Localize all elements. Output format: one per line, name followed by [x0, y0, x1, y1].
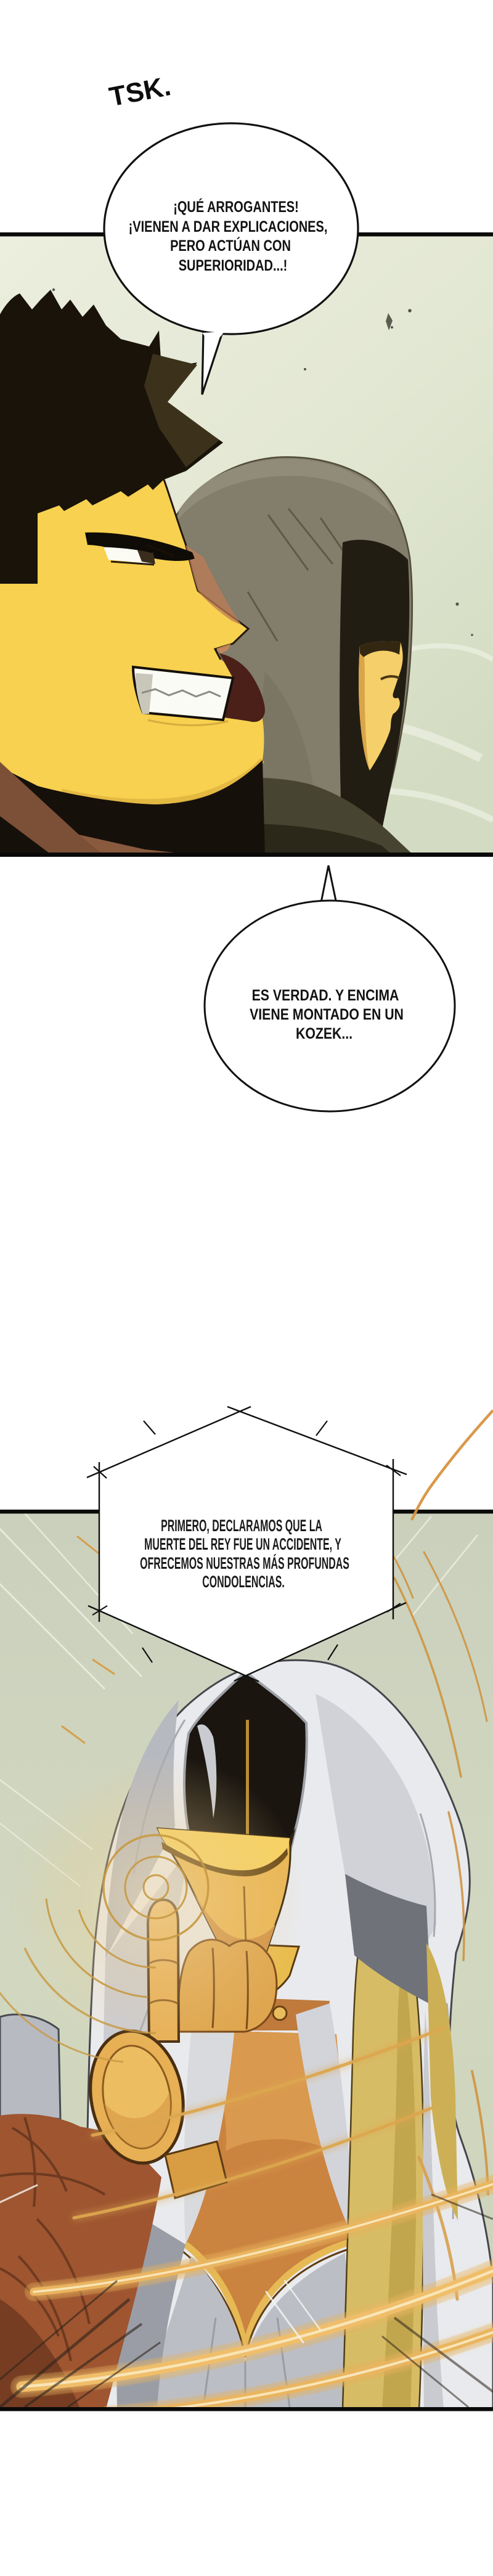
svg-text:PERO ACTÚAN CON: PERO ACTÚAN CON — [170, 237, 291, 255]
svg-text:OFRECEMOS NUESTRAS MÁS PROFUND: OFRECEMOS NUESTRAS MÁS PROFUNDAS — [140, 1554, 349, 1572]
svg-text:MUERTE DEL REY FUE UN ACCIDENT: MUERTE DEL REY FUE UN ACCIDENTE, Y — [144, 1535, 341, 1553]
svg-text:¡QUÉ ARROGANTES!: ¡QUÉ ARROGANTES! — [173, 198, 299, 216]
svg-text:VIENE MONTADO EN UN: VIENE MONTADO EN UN — [250, 1005, 404, 1023]
svg-text:¡VIENEN A DAR EXPLICACIONES,: ¡VIENEN A DAR EXPLICACIONES, — [129, 218, 328, 235]
svg-text:SUPERIORIDAD...!: SUPERIORIDAD...! — [179, 257, 288, 274]
svg-text:KOZEK...: KOZEK... — [296, 1024, 352, 1042]
svg-text:ES VERDAD. Y ENCIMA: ES VERDAD. Y ENCIMA — [252, 986, 399, 1004]
svg-text:TSK.: TSK. — [107, 71, 173, 112]
svg-text:CONDOLENCIAS.: CONDOLENCIAS. — [202, 1572, 285, 1591]
svg-text:PRIMERO, DECLARAMOS QUE LA: PRIMERO, DECLARAMOS QUE LA — [161, 1516, 322, 1535]
